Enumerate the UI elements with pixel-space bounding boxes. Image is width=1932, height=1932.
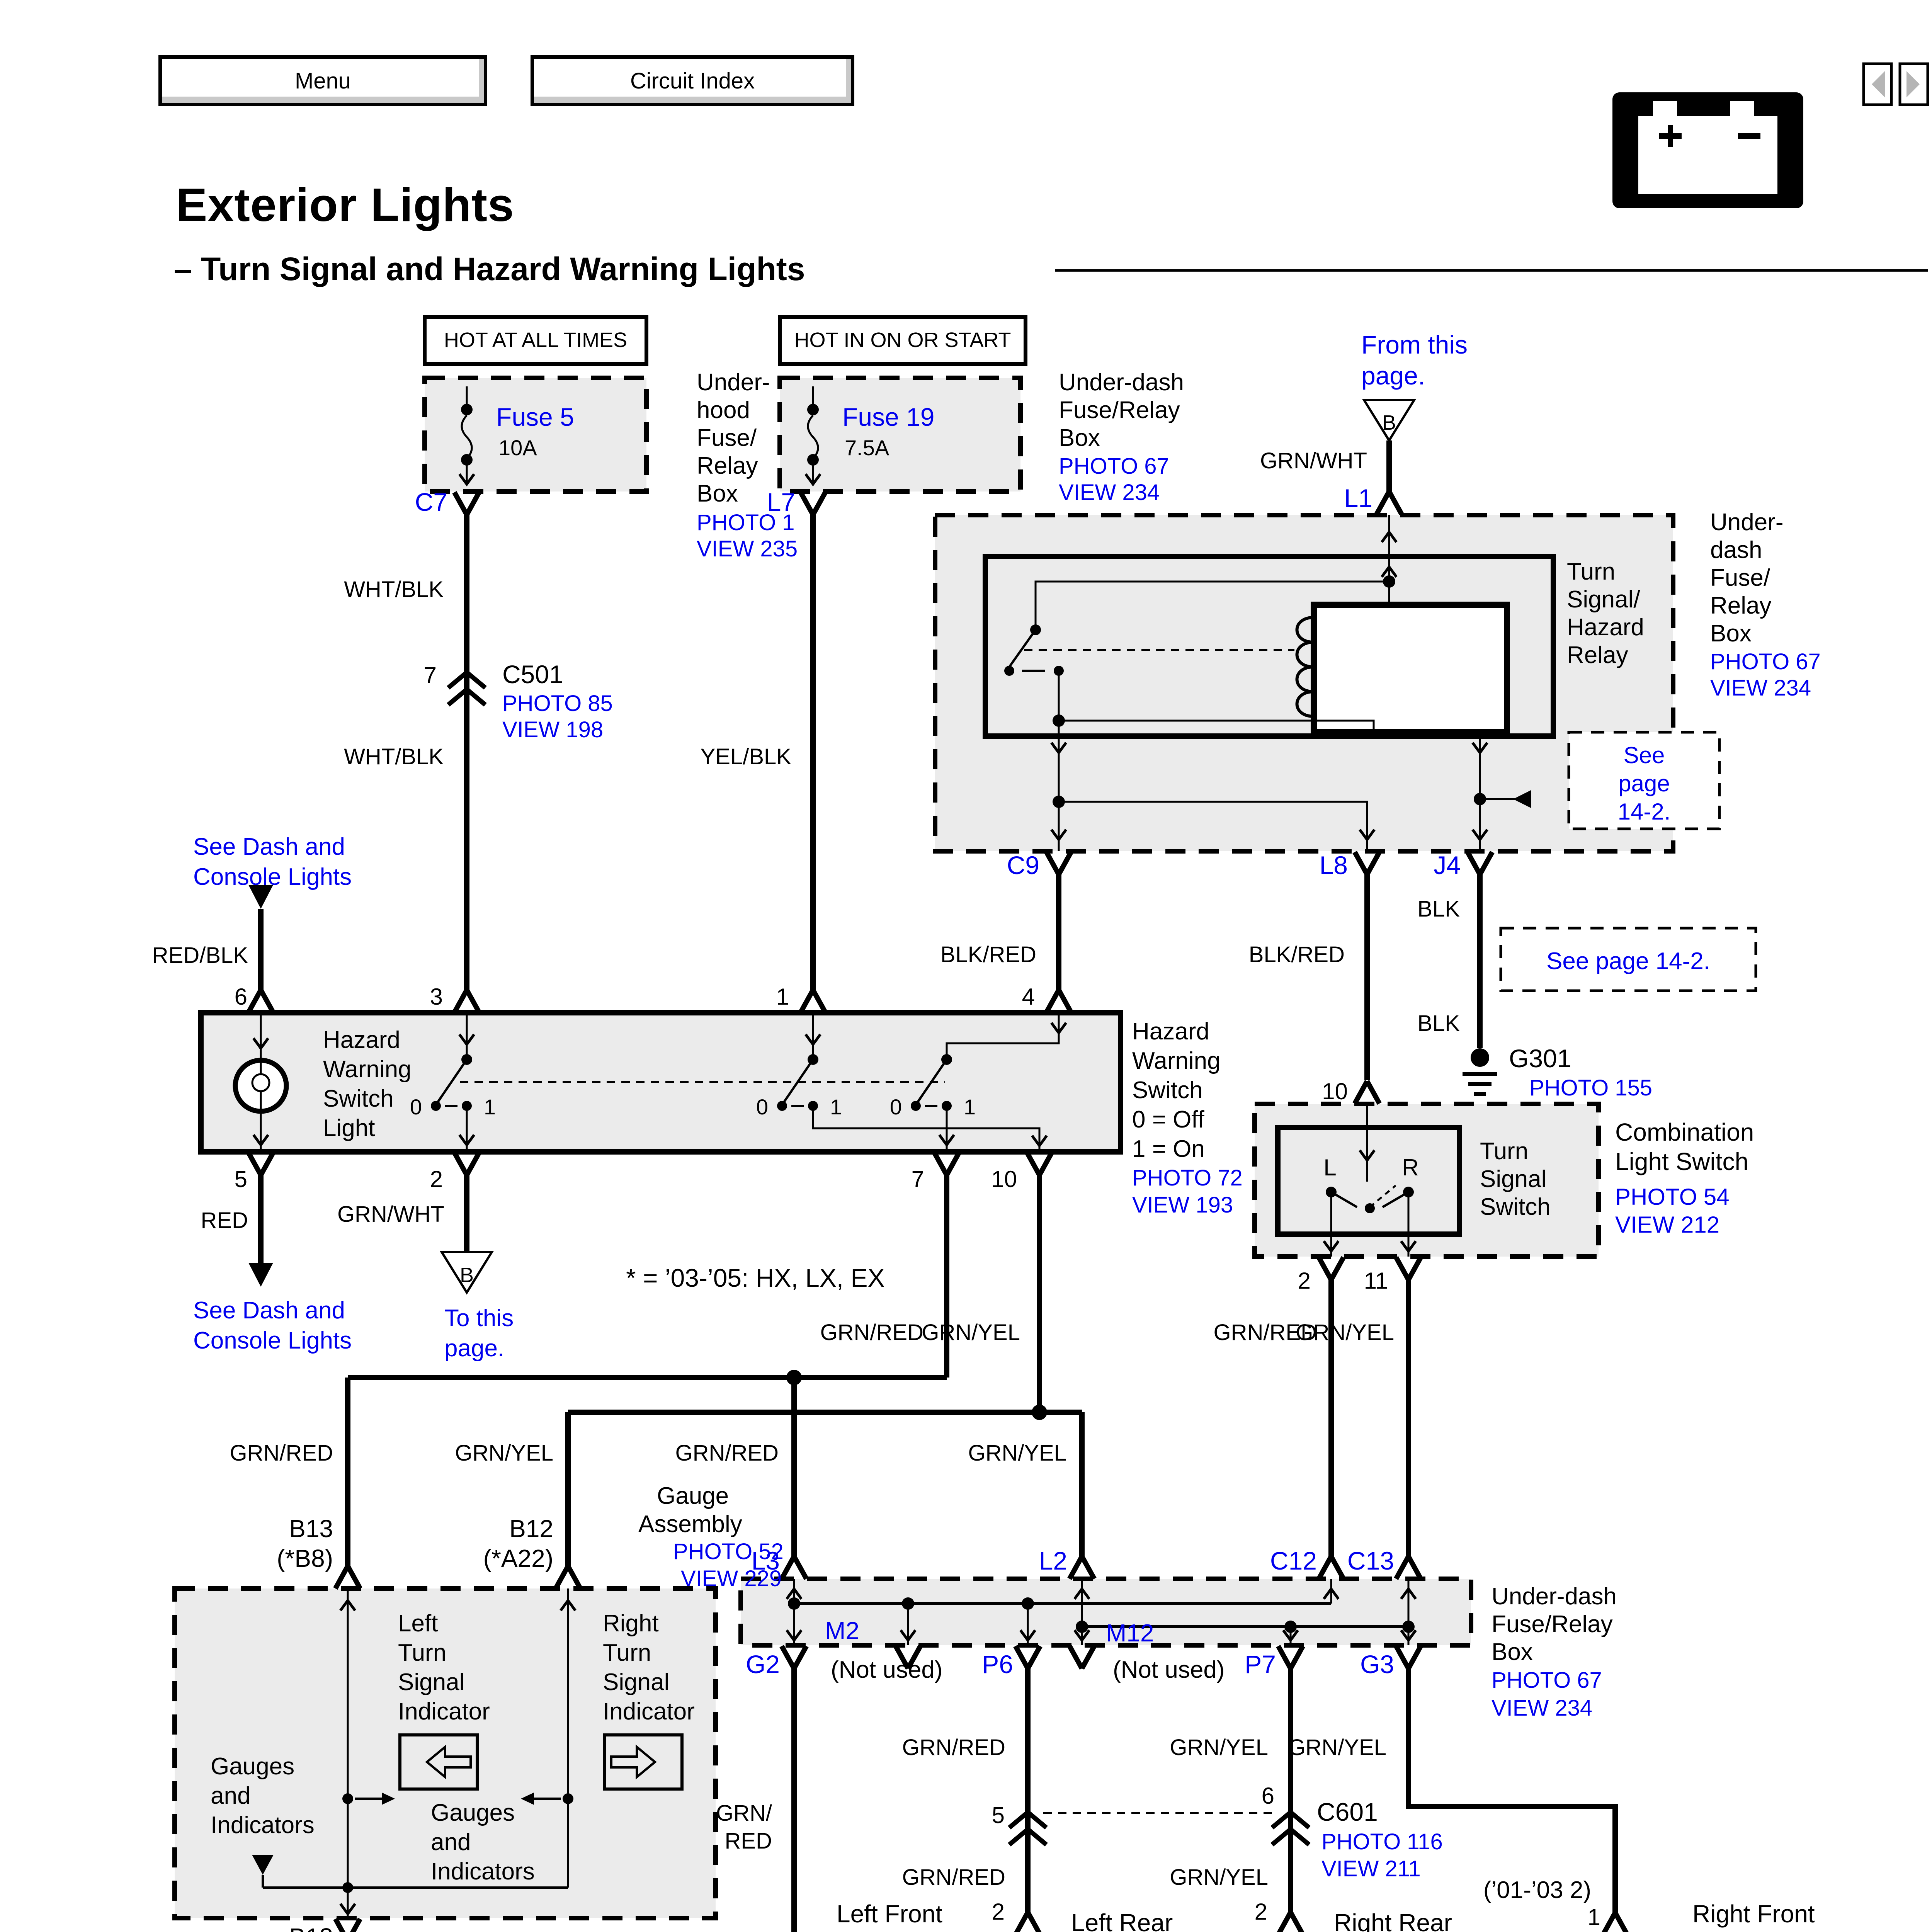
junction-dot <box>941 1054 952 1065</box>
label-grn-red: GRN/RED <box>820 1320 923 1345</box>
label-console-lights[interactable]: Console Lights <box>193 1327 352 1354</box>
page: HOT AT ALL TIMESHOT IN ON OR STARTFuse 5… <box>0 0 1932 1932</box>
label-grn-yel: GRN/YEL <box>1170 1735 1268 1760</box>
label-signal: Signal <box>603 1669 669 1696</box>
label-hazard: Hazard <box>1567 614 1644 641</box>
label-l7[interactable]: L7 <box>767 488 795 516</box>
label-assembly: Assembly <box>638 1511 742 1537</box>
label-relay: Relay <box>1567 642 1628 668</box>
label-b8: (*B8) <box>277 1544 333 1572</box>
junction-dot <box>808 1101 818 1111</box>
label-fuse: Fuse/ <box>1710 565 1770 591</box>
junction-dot <box>1004 666 1014 676</box>
connector-fork <box>801 990 825 1012</box>
label-not-used: (Not used) <box>1113 1656 1225 1683</box>
label-1: 1 <box>964 1095 976 1119</box>
junction-dot <box>786 1370 802 1385</box>
label-blk-red: BLK/RED <box>940 942 1036 967</box>
junction-dot <box>1054 666 1064 676</box>
to-dash-lights-arrow <box>248 1263 273 1287</box>
ground-g301-j4-bars <box>1463 1074 1497 1094</box>
label-b12: B12 <box>509 1515 553 1543</box>
junction-dot <box>1284 1621 1297 1633</box>
label-2: 2 <box>1255 1899 1267 1925</box>
label-6: 6 <box>1262 1783 1274 1809</box>
label-c601: C601 <box>1317 1798 1378 1826</box>
label-left-front: Left Front <box>837 1900 942 1928</box>
junction-dot <box>1032 1405 1047 1420</box>
label-switch: Switch <box>1480 1194 1551 1220</box>
connector-fork <box>335 1566 360 1588</box>
label-turn-signal: Turn Signal/ <box>837 1930 969 1932</box>
label-view-234[interactable]: VIEW 234 <box>1710 675 1811 701</box>
connector-fork <box>454 1153 479 1175</box>
label-03-05-hx-lx-ex: * = ’03-’05: HX, LX, EX <box>626 1264 885 1292</box>
junction-dot <box>342 1882 353 1893</box>
label-3: 3 <box>430 984 443 1010</box>
connector-fork <box>248 990 273 1012</box>
connector-fork <box>1278 1646 1303 1668</box>
label-0: 0 <box>410 1095 422 1119</box>
label-grn-wht: GRN/WHT <box>337 1202 444 1227</box>
label-under-dash: Under-dash <box>1059 369 1184 396</box>
label-2: 2 <box>1298 1268 1311 1294</box>
junction-dot <box>1022 1597 1034 1610</box>
label-gauges: Gauges <box>431 1799 515 1826</box>
label-grn-yel: GRN/YEL <box>455 1440 553 1466</box>
label-1-on: 1 = On <box>1132 1136 1205 1162</box>
junction-dot <box>563 1793 573 1804</box>
connector-fork <box>1015 1912 1040 1932</box>
menu-button-top[interactable]: Menu <box>158 55 487 106</box>
junction-dot <box>1403 1187 1414 1197</box>
label-2: 2 <box>430 1166 443 1192</box>
label-yel-blk: YEL/BLK <box>701 744 792 769</box>
label-1: 1 <box>484 1095 496 1119</box>
junction-dot <box>461 454 473 466</box>
junction-dot <box>1402 1621 1415 1633</box>
label-page[interactable]: page <box>1618 770 1670 796</box>
label-blk: BLK <box>1417 1011 1460 1036</box>
label-and: and <box>211 1782 250 1809</box>
label-photo-54[interactable]: PHOTO 54 <box>1615 1184 1730 1210</box>
label-relay: Relay <box>697 452 758 479</box>
label-c501: C501 <box>502 660 563 689</box>
label-grn-red: GRN/RED <box>230 1440 333 1466</box>
junction-dot <box>1053 714 1065 727</box>
label-gauge: Gauge <box>657 1483 729 1509</box>
label-photo-67[interactable]: PHOTO 67 <box>1492 1668 1602 1693</box>
label-red: RED <box>201 1208 248 1233</box>
label-c12[interactable]: C12 <box>1270 1546 1317 1575</box>
label-see-page-14-2[interactable]: See page 14-2. <box>1546 948 1710 975</box>
label-view-193[interactable]: VIEW 193 <box>1132 1192 1233 1218</box>
label-fuse-relay: Fuse/Relay <box>1059 397 1180 423</box>
connector-fork <box>1070 1556 1094 1579</box>
label-l2[interactable]: L2 <box>1039 1546 1067 1575</box>
label-box: Box <box>1710 620 1752 647</box>
label-indicator: Indicator <box>603 1698 695 1725</box>
label-turn: Turn <box>1567 558 1615 585</box>
junction-dot <box>461 404 473 415</box>
label-left: Left <box>398 1610 438 1637</box>
label-m12[interactable]: M12 <box>1106 1619 1154 1647</box>
label-grn-red: GRN/RED <box>675 1440 779 1466</box>
label-r: R <box>1402 1155 1418 1180</box>
junction-dot <box>911 1101 921 1111</box>
label-1: 1 <box>1588 1904 1600 1930</box>
label-p7[interactable]: P7 <box>1245 1650 1276 1679</box>
label-box: Box <box>1059 425 1100 451</box>
label-grn-yel: GRN/YEL <box>922 1320 1020 1345</box>
label-2: 2 <box>992 1899 1005 1925</box>
ground-g301-j4 <box>1471 1048 1489 1067</box>
label-photo-67[interactable]: PHOTO 67 <box>1059 454 1169 479</box>
label-5: 5 <box>235 1166 247 1192</box>
label-7: 7 <box>912 1166 924 1192</box>
label-blk-red: BLK/RED <box>1249 942 1345 967</box>
label-and: and <box>431 1829 471 1855</box>
connector-fork <box>1319 1257 1344 1280</box>
label-photo-85[interactable]: PHOTO 85 <box>502 691 613 716</box>
label-0-off: 0 = Off <box>1132 1106 1204 1133</box>
junction-dot <box>462 1101 472 1111</box>
label-10a: 10A <box>498 435 537 460</box>
label-view-235[interactable]: VIEW 235 <box>697 536 798 561</box>
label-to-this[interactable]: To this <box>444 1305 514 1332</box>
battery-body <box>1638 116 1777 194</box>
connector-fork <box>1377 492 1401 514</box>
label-1: 1 <box>776 984 789 1010</box>
label-g3[interactable]: G3 <box>1360 1650 1394 1679</box>
label-dash: dash <box>1710 537 1762 563</box>
label-l1[interactable]: L1 <box>1344 484 1372 512</box>
label-grn-yel: GRN/YEL <box>968 1440 1066 1466</box>
connector-fork <box>1603 1913 1628 1932</box>
label-grn-red: GRN/RED <box>902 1865 1005 1890</box>
label-light: Light <box>323 1115 375 1141</box>
label-console-lights[interactable]: Console Lights <box>193 864 352 890</box>
label-4: 4 <box>1022 984 1035 1010</box>
label-grn-yel: GRN/YEL <box>1170 1865 1268 1890</box>
label-hot-in-on-or-start: HOT IN ON OR START <box>794 328 1011 352</box>
label-under: Under- <box>697 369 770 396</box>
label-page[interactable]: page. <box>444 1335 504 1362</box>
label-light-switch: Light Switch <box>1615 1148 1748 1175</box>
connector-fork <box>1396 1257 1421 1280</box>
label-blk: BLK <box>1417 896 1460 922</box>
circuit-index-button-top[interactable]: Circuit Index <box>531 55 854 106</box>
label-right: Right <box>603 1610 659 1637</box>
label-from-this[interactable]: From this <box>1361 330 1468 359</box>
label-5: 5 <box>992 1802 1005 1828</box>
connector-fork <box>1015 1646 1040 1668</box>
label-hazard: Hazard <box>1132 1018 1209 1045</box>
label-left-rear: Left Rear <box>1071 1909 1173 1932</box>
label-under-dash: Under-dash <box>1492 1583 1617 1610</box>
junction-dot <box>431 1101 441 1111</box>
label-b: B <box>1382 411 1396 434</box>
connector-fork <box>1319 1556 1344 1579</box>
label-signal: Signal <box>398 1669 464 1696</box>
junction-dot <box>807 454 819 466</box>
label-photo-155[interactable]: PHOTO 155 <box>1529 1075 1652 1100</box>
label-switch: Switch <box>1132 1077 1203 1104</box>
label-0: 0 <box>756 1095 768 1119</box>
label-turn: Turn <box>603 1639 651 1666</box>
label-warning: Warning <box>1132 1048 1221 1074</box>
label-a22: (*A22) <box>483 1544 553 1572</box>
connector-fork <box>1468 852 1492 874</box>
label-l8[interactable]: L8 <box>1320 851 1348 879</box>
label-b13: B13 <box>289 1515 333 1543</box>
label-gauges: Gauges <box>211 1753 294 1780</box>
diagram-svg: HOT AT ALL TIMESHOT IN ON OR STARTFuse 5… <box>0 0 1932 1932</box>
label-14-2[interactable]: 14-2. <box>1618 799 1671 825</box>
under-hood-fuse-relay-box <box>425 378 646 492</box>
label-turn: Turn <box>1480 1138 1528 1165</box>
junction-dot <box>808 1054 818 1065</box>
junction-dot <box>1474 793 1486 805</box>
label-relay: Relay <box>1710 592 1772 619</box>
label-b: B <box>460 1264 474 1287</box>
label-g301: G301 <box>1509 1044 1571 1073</box>
label-0: 0 <box>890 1095 902 1119</box>
label-g2[interactable]: G2 <box>746 1650 780 1679</box>
connector-fork <box>556 1566 580 1588</box>
under-dash-fuse-box-top <box>780 378 1020 492</box>
connector-fork <box>1355 852 1379 874</box>
junction-dot <box>902 1597 914 1610</box>
label-b18: B18 <box>289 1923 333 1932</box>
label-6: 6 <box>235 984 247 1010</box>
label-wht-blk: WHT/BLK <box>344 744 444 769</box>
junction-dot <box>942 1101 952 1111</box>
junction-dot <box>1053 796 1065 808</box>
junction-dot <box>807 404 819 415</box>
label-indicators: Indicators <box>211 1812 315 1838</box>
label-photo-72[interactable]: PHOTO 72 <box>1132 1165 1243 1190</box>
label-warning: Warning <box>323 1056 412 1083</box>
label-hood: hood <box>697 397 750 423</box>
label-7-5a: 7.5A <box>845 435 889 460</box>
label-c9[interactable]: C9 <box>1007 851 1039 879</box>
battery-terminal-pos <box>1653 101 1677 118</box>
page-subtitle: – Turn Signal and Hazard Warning Lights <box>174 250 805 288</box>
connector-fork <box>1070 1646 1094 1668</box>
label-signal: Signal/ <box>1567 586 1640 613</box>
label-m2[interactable]: M2 <box>825 1617 859 1645</box>
junction-dot <box>1365 1203 1375 1213</box>
label-view-212[interactable]: VIEW 212 <box>1615 1212 1719 1238</box>
label-grn-yel: GRN/YEL <box>1288 1735 1386 1760</box>
label-grn-wht: GRN/WHT <box>1260 448 1367 473</box>
label-switch: Switch <box>323 1085 394 1112</box>
label-10: 10 <box>1322 1078 1348 1104</box>
label-grn-red: GRN/RED <box>902 1735 1005 1760</box>
label-page[interactable]: page. <box>1361 361 1425 390</box>
label-turn-signal: Turn Signal/ <box>1692 1930 1825 1932</box>
junction-dot <box>461 1054 472 1065</box>
label-1: 1 <box>830 1095 842 1119</box>
connector-fork <box>1396 1556 1421 1579</box>
connector-fork <box>1278 1912 1303 1932</box>
label-signal: Signal <box>1480 1166 1546 1192</box>
connector-fork <box>782 1556 806 1579</box>
label-indicators: Indicators <box>431 1858 535 1885</box>
label-l3[interactable]: L3 <box>752 1546 780 1575</box>
label-see[interactable]: See <box>1624 742 1665 768</box>
connector-fork <box>1027 1153 1052 1175</box>
label-indicator: Indicator <box>398 1698 490 1725</box>
junction-dot <box>1326 1187 1337 1197</box>
label-view-198[interactable]: VIEW 198 <box>502 717 603 742</box>
connector-fork <box>454 492 479 515</box>
junction-dot <box>1076 1621 1088 1633</box>
connector-fork <box>1355 1081 1379 1104</box>
connector-fork <box>782 1646 806 1668</box>
turn-signal-hazard-relay-unit <box>1314 605 1507 732</box>
label-c13[interactable]: C13 <box>1347 1546 1394 1575</box>
label-10: 10 <box>991 1166 1017 1192</box>
label-see-dash-and[interactable]: See Dash and <box>193 1297 345 1324</box>
label-turn: Turn <box>398 1639 446 1666</box>
label-right-front: Right Front <box>1692 1900 1815 1928</box>
connector-fork <box>1396 1646 1421 1668</box>
label-wht-blk: WHT/BLK <box>344 577 444 602</box>
label-fuse-relay: Fuse/Relay <box>1492 1611 1613 1638</box>
label-fuse-5[interactable]: Fuse 5 <box>496 403 574 431</box>
label-right-rear: Right Rear <box>1334 1909 1452 1932</box>
connector-fork <box>454 990 479 1012</box>
label-photo-116[interactable]: PHOTO 116 <box>1321 1829 1443 1854</box>
label-view-234[interactable]: VIEW 234 <box>1492 1696 1592 1721</box>
connector-fork <box>335 1919 360 1932</box>
junction-dot <box>1383 575 1395 588</box>
junction-dot <box>1030 624 1041 635</box>
label-box: Box <box>697 480 738 507</box>
label-red-blk: RED/BLK <box>152 943 248 968</box>
connector-fork <box>1046 990 1071 1012</box>
label-hazard: Hazard <box>323 1027 400 1053</box>
page-title: Exterior Lights <box>176 178 514 232</box>
label-fuse-19[interactable]: Fuse 19 <box>842 403 934 431</box>
battery-terminal-neg <box>1730 101 1754 118</box>
label-fuse: Fuse/ <box>697 425 757 451</box>
label-red: RED <box>725 1828 772 1854</box>
label-11: 11 <box>1364 1268 1388 1294</box>
connector-fork <box>1046 852 1071 874</box>
label-l: L <box>1323 1155 1336 1180</box>
junction-dot <box>342 1793 353 1804</box>
label-view-211[interactable]: VIEW 211 <box>1321 1856 1421 1881</box>
junction-dot <box>777 1101 787 1111</box>
label-view-234[interactable]: VIEW 234 <box>1059 480 1160 505</box>
label-p6[interactable]: P6 <box>982 1650 1013 1679</box>
connector-fork <box>248 1153 273 1175</box>
label-box: Box <box>1492 1639 1533 1665</box>
connector-fork <box>801 492 825 515</box>
label-photo-67[interactable]: PHOTO 67 <box>1710 649 1821 674</box>
label-grn-yel: GRN/YEL <box>1296 1320 1394 1345</box>
label-grn: GRN/ <box>716 1801 772 1826</box>
label-under: Under- <box>1710 509 1784 536</box>
label-hot-at-all-times: HOT AT ALL TIMES <box>444 328 627 352</box>
label-c7[interactable]: C7 <box>415 488 447 516</box>
connector-fork <box>934 1153 959 1175</box>
label-combination: Combination <box>1615 1118 1754 1146</box>
label-not-used: (Not used) <box>831 1656 942 1683</box>
junction-dot <box>788 1597 800 1610</box>
label-j4[interactable]: J4 <box>1434 851 1461 879</box>
label-7: 7 <box>424 662 437 688</box>
label-01-03-2: (’01-’03 2) <box>1483 1877 1591 1903</box>
label-see-dash-and[interactable]: See Dash and <box>193 833 345 860</box>
